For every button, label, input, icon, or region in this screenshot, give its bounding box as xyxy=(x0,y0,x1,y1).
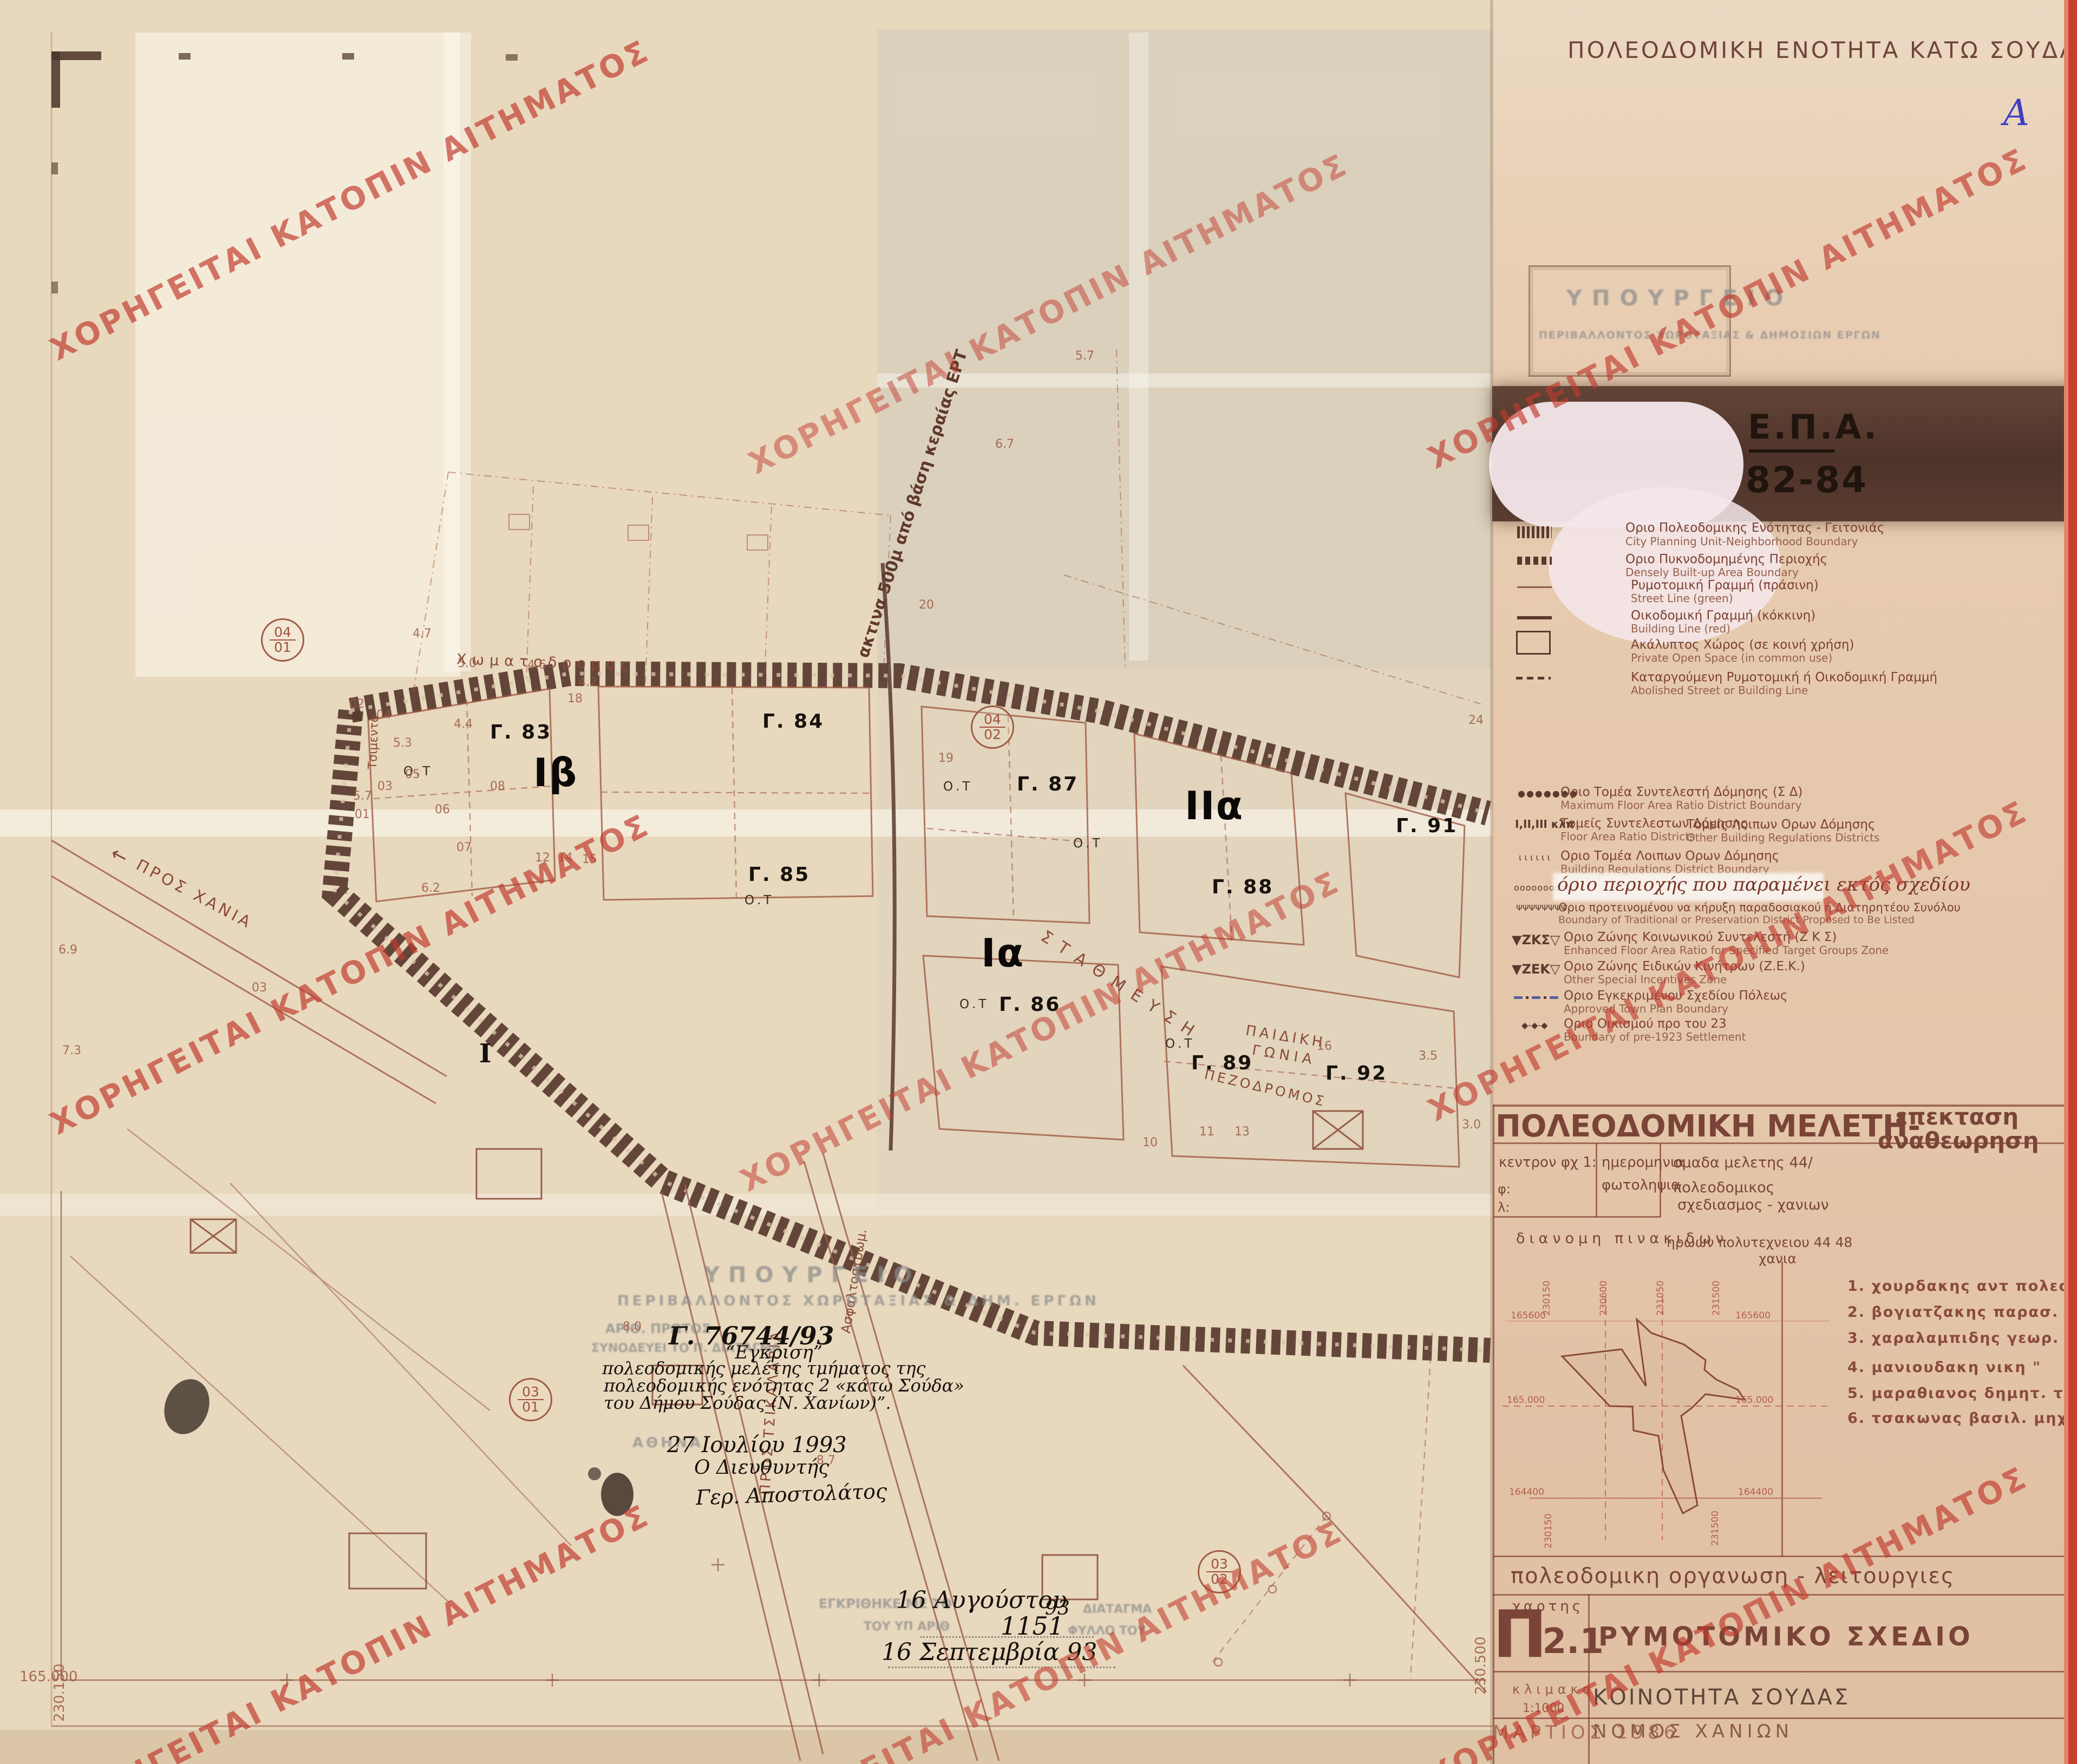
legend-label-handwritten: όριο περιοχής που παραμένει εκτός σχεδίο… xyxy=(1557,874,1970,896)
team-member: 6. τσακωνας βασιλ. μηχαν xyxy=(1847,1410,2077,1427)
legend-label: Οριο Τομέα Συντελεστή Δόμησης (Σ Δ) xyxy=(1560,785,1802,799)
spot-elevation: 5.7 xyxy=(1075,349,1094,363)
spot-elevation: 4.4 xyxy=(454,717,473,731)
scanned-map-page: Γ. 83 Γ. 84 Γ. 85 Γ. 86 Γ. 87 Γ. 88 Γ. 8… xyxy=(0,0,2077,1764)
spot-elevation: 4.6 xyxy=(527,658,546,672)
spot-elevation: 3.0 xyxy=(1462,1118,1481,1132)
spot-elevation: 7.3 xyxy=(62,1044,81,1057)
cell-study-team: ομαδα μελετης 44/ xyxy=(1673,1154,1813,1171)
inset-grid-label: 231500 xyxy=(1710,1511,1721,1546)
legend-label-en: Building Line (red) xyxy=(1631,622,1730,635)
block-label: Γ. 88 xyxy=(1212,876,1273,898)
legend-label: Καταργούμενη Ρυμοτομική ή Οικοδομική Γρα… xyxy=(1631,670,1937,684)
sector-code: 03 02 xyxy=(1198,1550,1241,1593)
inset-grid-label: 165600 xyxy=(1735,1310,1771,1321)
cell-study-team2: πολεοδομικος xyxy=(1673,1179,1775,1196)
grid-coordinate: 230.150 xyxy=(51,1663,68,1722)
sector-code-bottom: 02 xyxy=(1211,1572,1228,1586)
spot-elevation: 4.2 xyxy=(578,676,597,689)
zek-zone-icon: ▼ΖΕΚ▽ xyxy=(1512,962,1560,977)
cell-lambda: λ: xyxy=(1498,1200,1510,1215)
organization-row-title: πολεοδομικη οργανωση - λειτουργιες xyxy=(1511,1564,1955,1589)
block-label: Γ. 83 xyxy=(490,721,552,743)
legend-label-en: Boundary of Traditional or Preservation … xyxy=(1558,914,1915,926)
survey-monument-mark: Ι xyxy=(479,1038,491,1069)
inset-grid-label: 164400 xyxy=(1509,1487,1544,1498)
legend-label-en: Enhanced Floor Area Ratio for Specified … xyxy=(1564,944,1889,957)
parcel-number: 06 xyxy=(435,803,450,816)
legend-label: Οριο Πυκνοδομημένης Περιοχής xyxy=(1625,552,1827,566)
parcel-number: 13 xyxy=(1235,1125,1250,1139)
sector-code-top: 04 xyxy=(979,713,1005,728)
open-space-icon xyxy=(1516,631,1551,655)
sheet-index-inset-map: 230150 230600 231050 231500 165600 165.0… xyxy=(1497,1275,1838,1554)
approved-plan-boundary-icon xyxy=(1514,996,1562,999)
inset-grid-label: 230150 xyxy=(1543,1513,1554,1549)
titleblock-border xyxy=(1493,1556,2077,1557)
legend-label: Οριο Εγκεκριμένου Σχεδίου Πόλεως xyxy=(1564,989,1788,1003)
scale-label: κλιμακα xyxy=(1512,1682,1596,1697)
inset-grid-label: 165.000 xyxy=(1735,1395,1773,1406)
address-line1: ηρωων πολυτεχνειου 44 48 xyxy=(1667,1234,1852,1250)
sector-code: 03 01 xyxy=(509,1378,552,1421)
map-sheet-code: -2.1 xyxy=(1528,1622,1604,1662)
legend-label: Οριο προτεινομένου να κήρυξη παραδοσιακο… xyxy=(1558,901,1961,914)
legend-label: Ρυμοτομική Γραμμή (πράσινη) xyxy=(1631,578,1819,592)
sector-code-bottom: 02 xyxy=(984,728,1001,742)
parcel-number: 11 xyxy=(1199,1125,1214,1139)
spot-elevation: 5.7 xyxy=(353,789,372,803)
parcel-number: 04 xyxy=(376,708,391,722)
ot-label: Ο.Τ xyxy=(943,780,972,794)
scan-edge-strip xyxy=(2068,0,2077,1764)
ministry-stamp-title: ΥΠΟΥΡΓΕΙΟ xyxy=(1566,286,1793,311)
dense-area-boundary-icon xyxy=(1517,557,1552,565)
legend-label-en: Abolished Street or Building Line xyxy=(1631,684,1808,697)
team-member: 2. βογιατζακης παρασ. " xyxy=(1847,1304,2074,1321)
parcel-number: 15 xyxy=(582,853,597,866)
grid-coordinate: 230.500 xyxy=(1473,1636,1489,1695)
spot-elevation: 6.9 xyxy=(58,943,77,957)
block-label: Γ. 87 xyxy=(1017,773,1079,795)
legend-label-en: Maximum Floor Area Ratio District Bounda… xyxy=(1560,799,1802,812)
approval-line4: του Δήμου Σούδας (Ν. Χανίων)”. xyxy=(604,1393,891,1413)
legend-label: Οριο Οικισμού προ του 23 xyxy=(1564,1017,1727,1031)
boundary-hatch-icon xyxy=(1517,526,1552,538)
zone-label: ΙΙα xyxy=(1185,783,1244,828)
legend-label-en: City Planning Unit-Neighborhood Boundary xyxy=(1625,535,1858,548)
team-member: 4. μανιουδακη νικη " xyxy=(1847,1359,2041,1376)
parcel-number: 20 xyxy=(919,598,934,612)
inset-grid-label: 165.000 xyxy=(1507,1395,1545,1406)
zone-label: Ιβ xyxy=(533,750,578,795)
scan-edge-strip xyxy=(2064,0,2068,1764)
inset-grid-label: 230600 xyxy=(1598,1280,1609,1316)
sector-code-top: 04 xyxy=(270,625,296,641)
spot-elevation: 8.7 xyxy=(817,1454,835,1467)
parcel-number: 24 xyxy=(1468,714,1484,727)
spot-elevation: 8.0 xyxy=(623,1320,642,1334)
legend-label: Τομείς Λοιπων Ορων Δόμησης xyxy=(1687,818,1875,832)
approval-role: Ο Διευθυντής xyxy=(694,1456,829,1479)
legend-label-en: Street Line (green) xyxy=(1631,592,1733,605)
parcel-number: 02 xyxy=(349,697,364,711)
parcel-number: 10 xyxy=(1142,1136,1158,1149)
epa-underline xyxy=(1749,449,1834,453)
legend-label: Οριο Τομέα Λοιπων Ορων Δόμησης xyxy=(1560,849,1779,863)
block-label: Γ. 86 xyxy=(999,994,1061,1016)
address-line2: χανια xyxy=(1759,1251,1797,1266)
block-label: Γ. 85 xyxy=(748,864,810,886)
sector-code-bottom: 01 xyxy=(522,1400,539,1414)
team-member: 3. χαραλαμπιδης γεωρ. αρχ xyxy=(1847,1330,2077,1347)
legend-label: Οριο Πολεοδομικης Ενότητας - Γειτονιάς xyxy=(1625,521,1884,535)
ot-label: Ο.Τ xyxy=(1073,837,1102,851)
parcel-number: 07 xyxy=(456,841,472,854)
team-member: 1. χουρδακης αντ πολεοδ xyxy=(1847,1278,2077,1295)
study-title: ΠΟΛΕΟΔΟΜΙΚΗ ΜΕΛΕΤΗ- xyxy=(1495,1109,1921,1144)
legend-label: Οριο Ζώνης Κοινωνικού Συντελεστή (Ζ Κ Σ) xyxy=(1564,930,1837,944)
sector-code: 04 02 xyxy=(971,705,1014,749)
prefecture-name: ΝΟΜΟΣ ΧΑΝΙΩΝ xyxy=(1593,1721,1793,1742)
sector-code-bottom: 01 xyxy=(274,641,291,655)
ot-label: Ο.Τ xyxy=(959,997,989,1011)
sector-code: 04 01 xyxy=(261,618,304,662)
page-title: ΠΟΛΕΟΔΟΜΙΚΗ ΕΝΟΤΗΤΑ ΚΑΤΩ ΣΟΥΔΑΣ xyxy=(1567,37,2077,63)
parcel-number: 19 xyxy=(938,752,953,765)
spot-elevation: 5.3 xyxy=(393,736,412,750)
inset-grid-label: 231050 xyxy=(1655,1280,1666,1316)
stamp-dotted-line xyxy=(888,1667,1115,1668)
spot-elevation: 5.0 xyxy=(458,657,476,670)
spot-elevation: 6.2 xyxy=(421,881,440,895)
epa-years: 82-84 xyxy=(1746,459,1868,501)
parcel-number: 08 xyxy=(490,780,505,793)
parcel-number: 05 xyxy=(405,768,420,781)
grid-coordinate: 165.000 xyxy=(19,1669,78,1685)
zks-zone-icon: ▼ΖΚΣ▽ xyxy=(1512,932,1560,948)
spot-elevation: 4.7 xyxy=(413,627,432,641)
faded-stamp-ministry2: ΠΕΡΙΒΑΛΛΟΝΤΟΣ ΧΩΡΟΤΑΞΙΑΣ & ΔΗΜ. ΕΡΓΩΝ xyxy=(617,1293,1100,1309)
titleblock-border xyxy=(1493,1671,2077,1672)
legend-label: Ακάλυπτος Χώρος (σε κοινή χρήση) xyxy=(1631,638,1854,652)
faded-stamp-ministry: ΥΠΟΥΡΓΕΙΟ xyxy=(704,1263,920,1288)
parcel-number: 18 xyxy=(567,692,583,705)
block-label: Γ. 84 xyxy=(762,710,824,733)
inset-grid-label: 165600 xyxy=(1511,1310,1546,1321)
study-subtitle-extension: επεκταση xyxy=(1895,1103,2019,1130)
cell-study-team3: σχεδιασμος - χανιων xyxy=(1677,1197,1829,1213)
parcel-number: 16 xyxy=(1317,1040,1332,1053)
scale-value: 1:1000 xyxy=(1523,1702,1564,1715)
parcel-number: 14 xyxy=(558,851,573,865)
titleblock-border xyxy=(1493,1216,1661,1218)
pre1923-boundary-icon: ◆-◆-◆ xyxy=(1521,1020,1547,1030)
sector-code-top: 03 xyxy=(518,1385,544,1400)
legend-label-en: Densely Built-up Area Boundary xyxy=(1625,566,1799,579)
abolished-line-icon xyxy=(1516,677,1551,680)
stamp-dotted-line xyxy=(920,1636,1094,1638)
cell-phi: φ: xyxy=(1498,1181,1511,1197)
legend-label: Οριο Ζώνης Ειδικών Κινήτρων (Ζ.Ε.Κ.) xyxy=(1564,959,1805,974)
street-line-icon xyxy=(1517,586,1552,588)
faded-under-no: ΤΟΥ ΥΠ ΑΡΙΘ xyxy=(864,1620,950,1634)
building-line-icon xyxy=(1517,616,1552,619)
legend-label-en: Other Building Regulations Districts xyxy=(1687,831,1879,844)
legend-label: Οικοδομική Γραμμή (κόκκινη) xyxy=(1631,609,1815,623)
cell-photo-date: ημερομηνια xyxy=(1602,1154,1684,1171)
legend-label-en: Approved Town Plan Boundary xyxy=(1564,1002,1728,1015)
inset-grid-label: 231500 xyxy=(1711,1280,1722,1316)
legend-label-en: Other Special Incentives Zone xyxy=(1564,973,1727,986)
titleblock-border xyxy=(1493,1594,2077,1596)
legend-label-en: Floor Area Ratio Districts xyxy=(1560,830,1695,843)
map-type-title: ΡΥΜΟΤΟΜΙΚΟ ΣΧΕΔΙΟ xyxy=(1598,1622,1974,1652)
community-name: ΚΟΙΝΟΤΗΤΑ ΣΟΥΔΑΣ xyxy=(1593,1685,1850,1710)
ot-label: Ο.Τ xyxy=(744,893,774,907)
parcel-number: 12 xyxy=(535,851,550,865)
regulations-boundary-icon: ι ι ι ι ι ι xyxy=(1519,852,1550,863)
zone-label: Ια xyxy=(981,930,1024,976)
ministry-stamp-subtitle: ΠΕΡΙΒΑΛΛΟΝΤΟΣ ΧΩΡΟΤΑΞΙΑΣ & ΔΗΜΟΣΙΩΝ ΕΡΓΩ… xyxy=(1539,329,1881,341)
block-label: Γ. 92 xyxy=(1325,1062,1387,1084)
epa-title: Ε.Π.Α. xyxy=(1748,407,1879,447)
parcel-number: 03 xyxy=(377,780,393,793)
parcel-number: 01 xyxy=(355,808,370,821)
ministry-stamp-box xyxy=(1529,265,1731,377)
spot-elevation: 3.5 xyxy=(1419,1049,1438,1063)
cell-center: κεντρον φχ 1: xyxy=(1499,1154,1597,1171)
inset-grid-label: 164400 xyxy=(1738,1487,1773,1498)
date-september: 16 Σεπτεμβρία 93 xyxy=(881,1638,1097,1666)
cell-photo-date2: φωτοληψια xyxy=(1602,1177,1680,1193)
sector-code-top: 03 xyxy=(1206,1557,1232,1572)
spot-elevation: 6.7 xyxy=(995,437,1014,451)
legend-label-en: Boundary of pre-1923 Settlement xyxy=(1564,1030,1746,1043)
team-member: 5. μαραθιανος δημητ. τοπ xyxy=(1847,1385,2077,1402)
titleblock-border xyxy=(1493,1717,2077,1719)
date-august: 16 Αυγούστου xyxy=(896,1586,1067,1614)
faded-decree: ΔΙΑΤΑΓΜΑ xyxy=(1083,1603,1152,1616)
legend-label-en: Private Open Space (in common use) xyxy=(1631,651,1832,664)
street-label-cement: Τσιμεντο xyxy=(366,715,381,769)
study-subtitle-revision: αναθεωρηση xyxy=(1878,1127,2039,1154)
parcel-number: 03 xyxy=(252,981,267,995)
block-label: Γ. 91 xyxy=(1396,815,1458,837)
corner-mark: Α xyxy=(2003,92,2029,134)
